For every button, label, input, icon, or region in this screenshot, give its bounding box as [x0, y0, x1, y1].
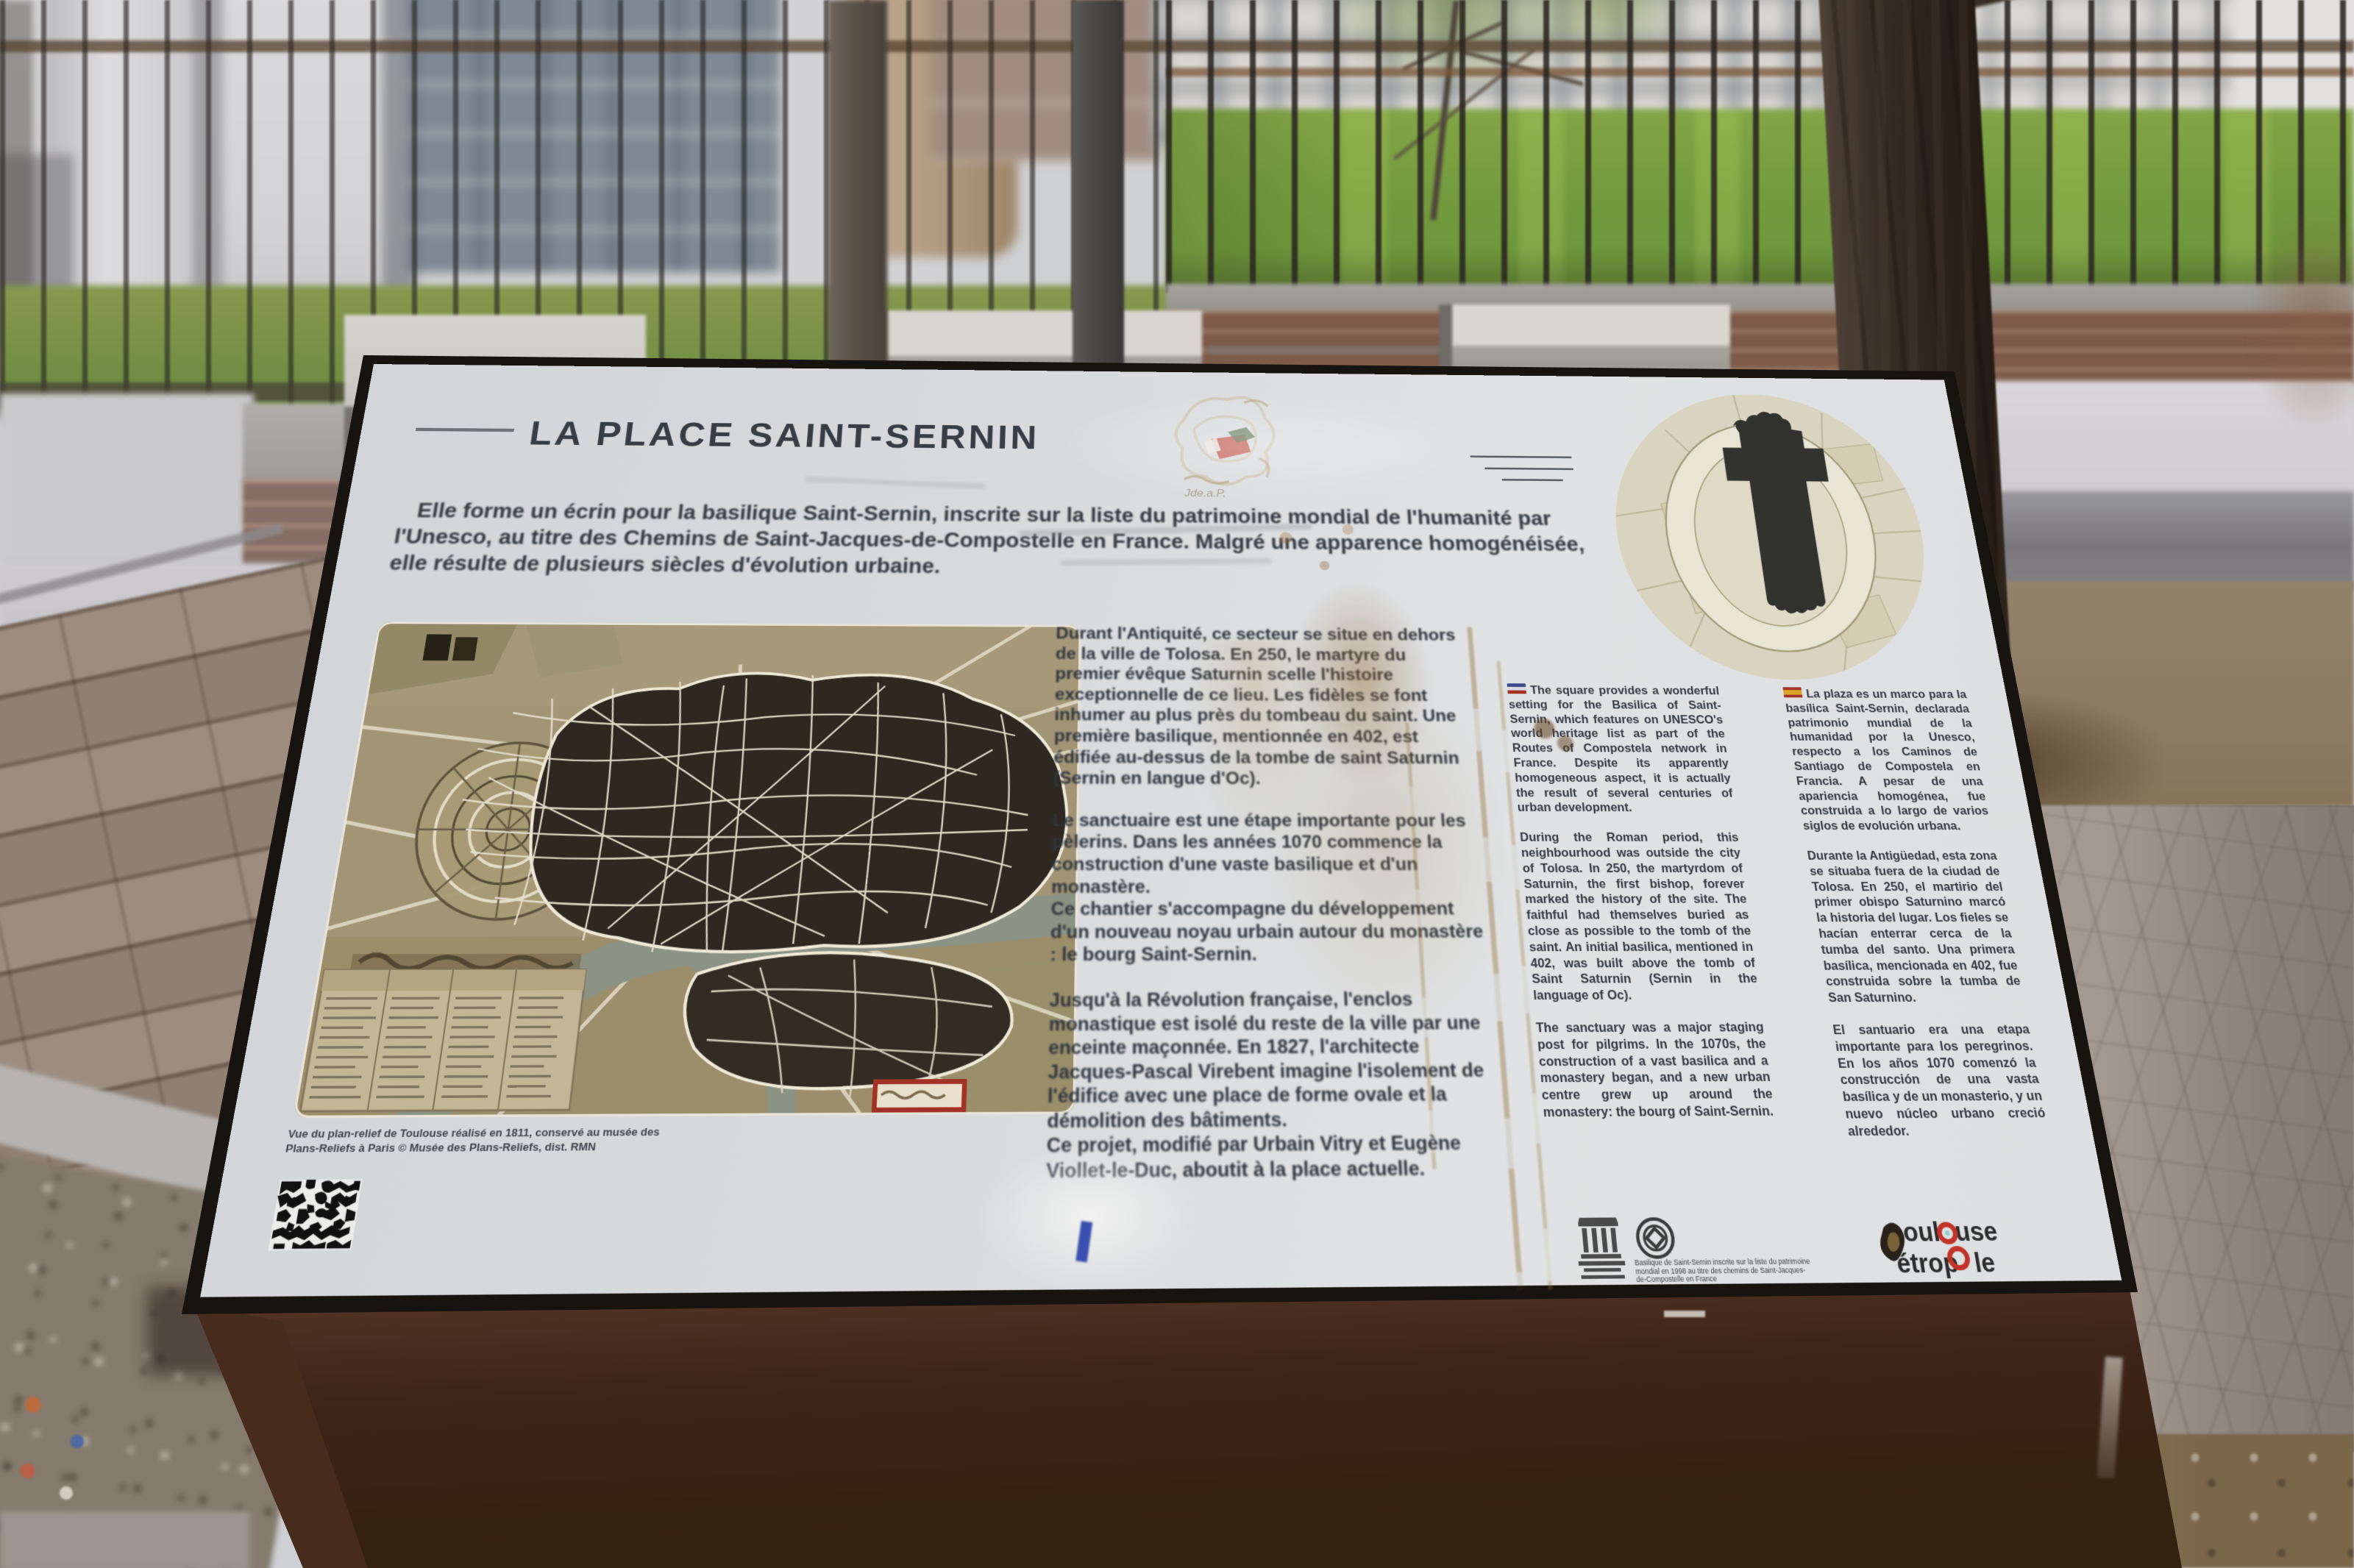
svg-text:le: le [1972, 1248, 1998, 1278]
svg-text:oul: oul [1901, 1217, 1942, 1247]
svg-text:use: use [1952, 1217, 1999, 1247]
